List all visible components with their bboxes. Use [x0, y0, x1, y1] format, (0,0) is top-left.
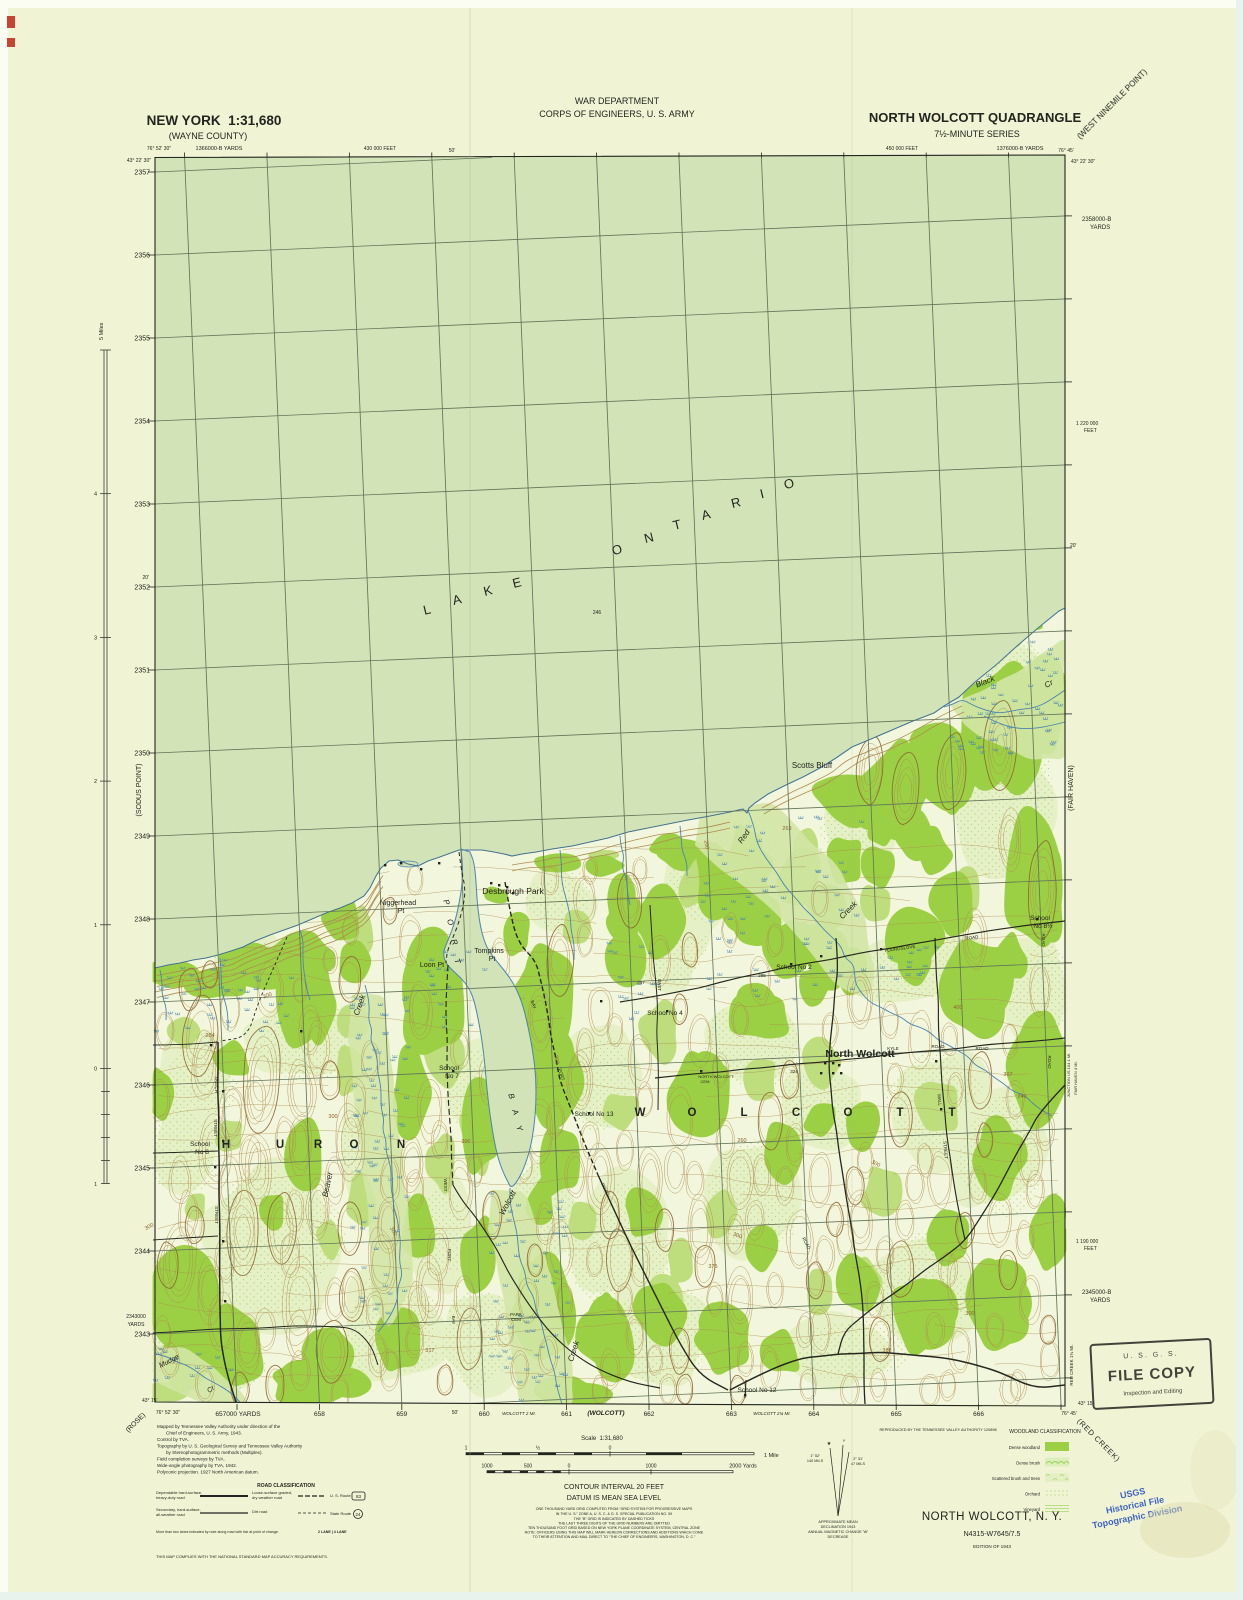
svg-text:heavy-duty road: heavy-duty road — [156, 1495, 185, 1500]
svg-text:76° 45′: 76° 45′ — [1058, 148, 1074, 154]
svg-text:School No 4: School No 4 — [647, 1010, 683, 1017]
svg-text:WAR DEPARTMENT: WAR DEPARTMENT — [575, 96, 660, 106]
svg-text:School: School — [439, 1065, 459, 1072]
svg-text:285: 285 — [758, 973, 766, 978]
svg-text:YARDS: YARDS — [1090, 225, 1110, 231]
svg-text:1376000-B YARDS: 1376000-B YARDS — [997, 146, 1044, 152]
svg-text:Pt: Pt — [489, 956, 496, 963]
svg-text:20′: 20′ — [1070, 543, 1077, 549]
svg-text:1366000-B YARDS: 1366000-B YARDS — [196, 146, 243, 152]
svg-text:2000 Yards: 2000 Yards — [729, 1464, 757, 1470]
svg-text:JUNCTION US 104 1 MI.: JUNCTION US 104 1 MI. — [1066, 1053, 1071, 1098]
svg-text:L: L — [740, 1107, 747, 1119]
svg-text:665: 665 — [891, 1411, 902, 1418]
svg-text:by Stereophotogrammetric metho: by Stereophotogrammetric methods (Multip… — [166, 1450, 263, 1455]
svg-text:O: O — [688, 1107, 697, 1119]
svg-text:School: School — [190, 1141, 210, 1148]
svg-text:2343: 2343 — [134, 1332, 150, 1339]
svg-text:CONTOUR INTERVAL 20 FEET: CONTOUR INTERVAL 20 FEET — [564, 1484, 665, 1491]
svg-text:STREET: STREET — [214, 1206, 219, 1224]
svg-text:2346: 2346 — [134, 1083, 150, 1090]
svg-text:N4315-W7645/7.5: N4315-W7645/7.5 — [964, 1531, 1021, 1538]
svg-text:2344: 2344 — [134, 1249, 150, 1256]
svg-text:50′: 50′ — [449, 148, 456, 154]
svg-text:666: 666 — [973, 1411, 984, 1418]
svg-text:375: 375 — [708, 1264, 717, 1270]
svg-text:2 LANE | 4 LANE: 2 LANE | 4 LANE — [318, 1530, 347, 1534]
svg-text:School: School — [1030, 915, 1050, 922]
svg-text:FEET: FEET — [1084, 1246, 1097, 1252]
svg-text:300: 300 — [328, 1114, 337, 1120]
svg-text:2345000-B: 2345000-B — [1082, 1290, 1111, 1296]
svg-text:659: 659 — [396, 1411, 407, 1418]
svg-text:43° 22′ 30″: 43° 22′ 30″ — [127, 158, 151, 164]
svg-text:No 8: No 8 — [195, 1149, 209, 1156]
svg-text:H: H — [222, 1139, 230, 1151]
svg-text:2358000-B: 2358000-B — [1082, 217, 1111, 223]
svg-text:ROAD: ROAD — [975, 1046, 989, 1051]
svg-text:2350: 2350 — [134, 751, 150, 758]
svg-text:ROAD: ROAD — [931, 1044, 945, 1049]
svg-text:Control by TVA.: Control by TVA. — [157, 1437, 189, 1442]
svg-text:RED CREEK 1¾ MI.: RED CREEK 1¾ MI. — [1069, 1344, 1074, 1385]
svg-text:KYLE: KYLE — [887, 1046, 899, 1051]
svg-text:ROAD: ROAD — [1041, 933, 1046, 947]
svg-text:Polyconic projection. 1927 No: Polyconic projection. 1927 North America… — [157, 1470, 259, 1475]
svg-text:DATUM IS MEAN SEA LEVEL: DATUM IS MEAN SEA LEVEL — [567, 1495, 662, 1502]
svg-text:REPRODUCED BY THE TENNESSEE VA: REPRODUCED BY THE TENNESSEE VALLEY AUTHO… — [879, 1428, 996, 1432]
svg-text:Mapped by Tennessee Valley Aut: Mapped by Tennessee Valley Authority und… — [157, 1424, 281, 1429]
svg-text:2343000: 2343000 — [126, 1314, 146, 1320]
svg-text:Pt: Pt — [398, 908, 405, 915]
svg-text:76° 52′ 30″: 76° 52′ 30″ — [156, 1410, 180, 1416]
svg-text:2347: 2347 — [134, 1000, 150, 1007]
svg-text:2349: 2349 — [134, 834, 150, 841]
svg-text:2354: 2354 — [134, 419, 150, 426]
svg-text:C: C — [792, 1107, 800, 1119]
svg-text:43° 15′: 43° 15′ — [142, 1398, 158, 1404]
svg-text:WOLCOTT 2¾ MI.: WOLCOTT 2¾ MI. — [753, 1411, 791, 1416]
svg-text:DUTCH: DUTCH — [214, 1077, 219, 1093]
svg-text:661: 661 — [561, 1411, 572, 1418]
svg-text:THIS MAP COMPLIES WITH THE NAT: THIS MAP COMPLIES WITH THE NATIONAL STAN… — [156, 1554, 328, 1559]
svg-text:1: 1 — [94, 1182, 97, 1188]
svg-text:47 MILS: 47 MILS — [851, 1462, 866, 1466]
svg-text:NOTE: OFFICERS USING THIS MAP: NOTE: OFFICERS USING THIS MAP WILL MARK … — [525, 1531, 704, 1535]
svg-text:T: T — [896, 1107, 903, 1119]
svg-text:1: 1 — [465, 1446, 468, 1452]
svg-text:430 000 FEET: 430 000 FEET — [364, 146, 396, 152]
svg-text:TEN THOUSAND FOOT GRID BASED O: TEN THOUSAND FOOT GRID BASED ON NEW YORK… — [528, 1526, 701, 1530]
svg-text:24: 24 — [355, 1512, 361, 1517]
svg-text:2: 2 — [94, 779, 97, 785]
svg-text:2355: 2355 — [134, 336, 150, 343]
svg-text:284: 284 — [205, 1033, 214, 1039]
svg-text:657000 YARDS: 657000 YARDS — [215, 1411, 261, 1418]
svg-text:W: W — [635, 1107, 646, 1119]
svg-text:2° 31′: 2° 31′ — [853, 1457, 863, 1461]
svg-text:20′: 20′ — [143, 575, 150, 581]
svg-text:2345: 2345 — [134, 1166, 150, 1173]
svg-text:Scotts Bluff: Scotts Bluff — [792, 761, 833, 770]
svg-text:U. S. Route: U. S. Route — [330, 1493, 351, 1498]
svg-text:2351: 2351 — [134, 668, 150, 675]
svg-text:7½-MINUTE SERIES: 7½-MINUTE SERIES — [934, 129, 1020, 139]
svg-text:2348: 2348 — [134, 917, 150, 924]
svg-text:U: U — [276, 1139, 284, 1151]
svg-text:Topography by U. S. Geological: Topography by U. S. Geological Survey an… — [157, 1444, 303, 1449]
svg-text:all-weather road: all-weather road — [156, 1512, 185, 1517]
svg-text:317: 317 — [425, 1348, 434, 1354]
svg-text:246: 246 — [593, 610, 602, 616]
svg-text:T: T — [948, 1107, 955, 1119]
svg-text:240: 240 — [1017, 1094, 1026, 1100]
svg-text:North Wolcott: North Wolcott — [825, 1048, 895, 1060]
svg-text:School No 2: School No 2 — [776, 964, 812, 971]
svg-text:1 190 000: 1 190 000 — [1076, 1239, 1098, 1245]
svg-text:WEST: WEST — [443, 1179, 448, 1192]
svg-text:663: 663 — [726, 1411, 737, 1418]
svg-text:No 7: No 7 — [445, 1073, 459, 1080]
svg-text:BAY: BAY — [451, 1316, 456, 1325]
svg-text:ROAD CLASSIFICATION: ROAD CLASSIFICATION — [257, 1483, 315, 1489]
svg-text:1000: 1000 — [645, 1464, 656, 1470]
svg-text:DECREASE: DECREASE — [828, 1535, 849, 1539]
svg-text:Field completion surveys by TV: Field completion surveys by TVA. — [157, 1457, 225, 1462]
svg-text:★: ★ — [827, 1441, 832, 1447]
svg-text:300: 300 — [965, 1311, 974, 1317]
svg-text:THE LAST THREE DIGITS OF THE G: THE LAST THREE DIGITS OF THE GRID NUMBER… — [558, 1522, 670, 1526]
svg-text:DECLINATION 1943: DECLINATION 1943 — [821, 1525, 856, 1529]
svg-text:43° 22′ 30″: 43° 22′ 30″ — [1071, 159, 1095, 165]
svg-text:R: R — [314, 1139, 323, 1151]
svg-text:76° 45′: 76° 45′ — [1061, 1411, 1077, 1417]
svg-text:THE “B” GRID IS INDICATED BY D: THE “B” GRID IS INDICATED BY DASHED TICK… — [574, 1517, 655, 1521]
svg-text:N: N — [397, 1139, 405, 1151]
svg-text:ROAD: ROAD — [1047, 1055, 1052, 1069]
svg-text:Scattered brush and trees: Scattered brush and trees — [992, 1476, 1040, 1481]
svg-text:YARDS: YARDS — [128, 1322, 146, 1328]
svg-text:Orchard: Orchard — [1025, 1492, 1041, 1497]
svg-text:2352: 2352 — [134, 585, 150, 592]
svg-text:658: 658 — [314, 1411, 325, 1418]
svg-text:Dense woodland: Dense woodland — [1009, 1445, 1041, 1450]
svg-text:4: 4 — [94, 492, 97, 498]
svg-text:500: 500 — [524, 1464, 533, 1470]
svg-text:EAST: EAST — [657, 979, 662, 991]
svg-text:ANNUAL MAGNETIC CHANGE ’W′: ANNUAL MAGNETIC CHANGE ’W′ — [808, 1530, 868, 1534]
svg-text:Y: Y — [843, 1438, 846, 1443]
svg-text:76° 52′ 30″: 76° 52′ 30″ — [147, 146, 171, 152]
svg-text:Loon Pt: Loon Pt — [420, 962, 444, 969]
svg-text:307: 307 — [1003, 1072, 1012, 1078]
svg-text:State Route: State Route — [330, 1511, 352, 1516]
svg-text:PORT: PORT — [447, 1249, 452, 1262]
svg-text:43° 15′: 43° 15′ — [1078, 1401, 1094, 1407]
svg-text:1° 52′: 1° 52′ — [810, 1454, 820, 1458]
svg-text:400: 400 — [953, 1005, 962, 1011]
svg-text:324: 324 — [790, 1069, 798, 1074]
svg-text:STREET: STREET — [213, 1119, 218, 1137]
svg-text:NEW YORK 1:31,680: NEW YORK 1:31,680 — [147, 113, 282, 128]
svg-text:NORTH WOLCOTT QUADRANGLE: NORTH WOLCOTT QUADRANGLE — [869, 110, 1082, 125]
svg-text:140 MILS: 140 MILS — [807, 1459, 824, 1463]
svg-text:(WOLCOTT): (WOLCOTT) — [587, 1410, 624, 1417]
svg-text:FEET: FEET — [1084, 428, 1097, 434]
svg-text:2356: 2356 — [134, 253, 150, 260]
svg-text:(SODUS POINT): (SODUS POINT) — [136, 764, 143, 817]
svg-text:TO THEIR ATTENTION AND MAIL DI: TO THEIR ATTENTION AND MAIL DIRECT TO “T… — [533, 1535, 696, 1539]
svg-text:660: 660 — [479, 1411, 490, 1418]
svg-text:WOODLAND CLASSIFICATION: WOODLAND CLASSIFICATION — [1009, 1429, 1081, 1435]
svg-text:3: 3 — [94, 635, 97, 641]
svg-text:1: 1 — [94, 923, 97, 929]
svg-text:(FAIR HAVEN): (FAIR HAVEN) — [1068, 765, 1075, 811]
svg-text:dry weather road: dry weather road — [252, 1495, 282, 1500]
svg-text:FAIR HAVEN 4 MI.: FAIR HAVEN 4 MI. — [1073, 1061, 1078, 1095]
svg-text:1 220 000: 1 220 000 — [1076, 421, 1098, 427]
svg-text:WOLCOTT 2 MI.: WOLCOTT 2 MI. — [502, 1411, 536, 1416]
svg-text:Dirt road: Dirt road — [252, 1509, 267, 1514]
svg-text:1000: 1000 — [481, 1464, 492, 1470]
svg-text:Scale 1:31,680: Scale 1:31,680 — [581, 1436, 623, 1442]
svg-text:No 8½: No 8½ — [1033, 922, 1053, 930]
svg-text:Dense brush: Dense brush — [1016, 1461, 1040, 1466]
svg-text:IN THE U. S.” ZONE A, U. S. C.: IN THE U. S.” ZONE A, U. S. C. & G. S. S… — [556, 1512, 672, 1516]
svg-text:O: O — [844, 1107, 853, 1119]
svg-text:0: 0 — [609, 1446, 612, 1452]
svg-text:Niggerhead: Niggerhead — [380, 900, 416, 907]
svg-text:YARDS: YARDS — [1090, 1298, 1110, 1304]
svg-text:CEM: CEM — [701, 1079, 710, 1084]
svg-text:662: 662 — [644, 1411, 655, 1418]
svg-text:300: 300 — [461, 1139, 470, 1145]
svg-text:School No 12: School No 12 — [737, 1387, 776, 1394]
svg-text:1 Mile: 1 Mile — [764, 1453, 779, 1459]
svg-text:0: 0 — [94, 1067, 97, 1073]
svg-text:Tompkins: Tompkins — [474, 948, 504, 955]
svg-text:Wide-angle photography by TVA,: Wide-angle photography by TVA, 1942. — [157, 1463, 237, 1468]
svg-text:(WAYNE COUNTY): (WAYNE COUNTY) — [169, 131, 248, 141]
svg-text:0: 0 — [568, 1464, 571, 1470]
svg-text:2353: 2353 — [134, 502, 150, 509]
svg-text:260: 260 — [737, 1138, 746, 1144]
svg-text:664: 664 — [808, 1411, 819, 1418]
svg-text:Chief of Engineers, U. S. Army: Chief of Engineers, U. S. Army, 1943. — [166, 1431, 242, 1436]
svg-text:O: O — [350, 1139, 359, 1151]
svg-text:450 000 FEET: 450 000 FEET — [886, 146, 918, 152]
svg-text:Desbrough Park: Desbrough Park — [482, 886, 544, 896]
svg-text:ONE THOUSAND YARD GRID COMPUTE: ONE THOUSAND YARD GRID COMPUTED FROM “GR… — [536, 1507, 693, 1511]
svg-text:5 Miles: 5 Miles — [99, 322, 105, 340]
svg-text:CEM: CEM — [511, 1317, 521, 1322]
svg-text:83: 83 — [356, 1494, 362, 1499]
svg-text:School No 13: School No 13 — [574, 1111, 613, 1118]
svg-text:263: 263 — [782, 826, 791, 832]
svg-text:More than two lanes indicated: More than two lanes indicated by note al… — [156, 1530, 279, 1534]
svg-text:388: 388 — [882, 1348, 891, 1354]
svg-text:EDITION OF 1943: EDITION OF 1943 — [973, 1544, 1011, 1549]
svg-text:2357: 2357 — [134, 170, 150, 177]
svg-text:CORPS OF ENGINEERS, U. S. ARMY: CORPS OF ENGINEERS, U. S. ARMY — [539, 109, 695, 119]
svg-text:307: 307 — [637, 980, 645, 985]
svg-text:NORTH WOLCOTT, N. Y.: NORTH WOLCOTT, N. Y. — [922, 1511, 1062, 1523]
svg-text:50′: 50′ — [452, 1410, 459, 1416]
